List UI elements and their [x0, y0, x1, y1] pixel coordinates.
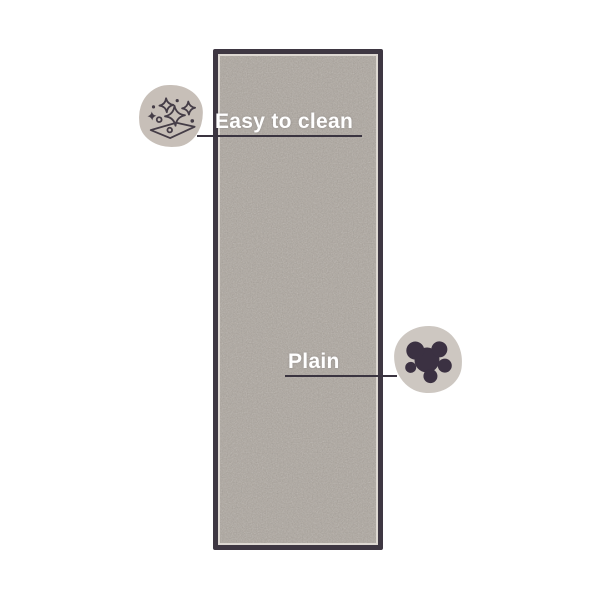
sparkle-clean-icon [137, 83, 204, 148]
leader-line-easy-to-clean [197, 135, 362, 137]
sparkle-circle [157, 117, 162, 122]
leader-line-plain [285, 375, 397, 377]
sparkle-top [159, 98, 174, 113]
easy-to-clean-badge [137, 83, 204, 148]
sparkle-dot [190, 119, 194, 123]
sparkle-dot [152, 105, 155, 108]
stain-splat-icon [393, 325, 463, 394]
product-image: Easy to clean Plain [0, 0, 600, 600]
callout-label-easy-to-clean: Easy to clean [215, 112, 353, 132]
sparkle-small-left [147, 111, 156, 120]
callout-label-plain: Plain [288, 352, 340, 372]
sparkle-circle [167, 128, 172, 133]
splat-shape [405, 340, 453, 384]
sparkle-right [182, 101, 196, 115]
sparkle-dot [176, 99, 179, 102]
plain-badge [393, 325, 463, 394]
